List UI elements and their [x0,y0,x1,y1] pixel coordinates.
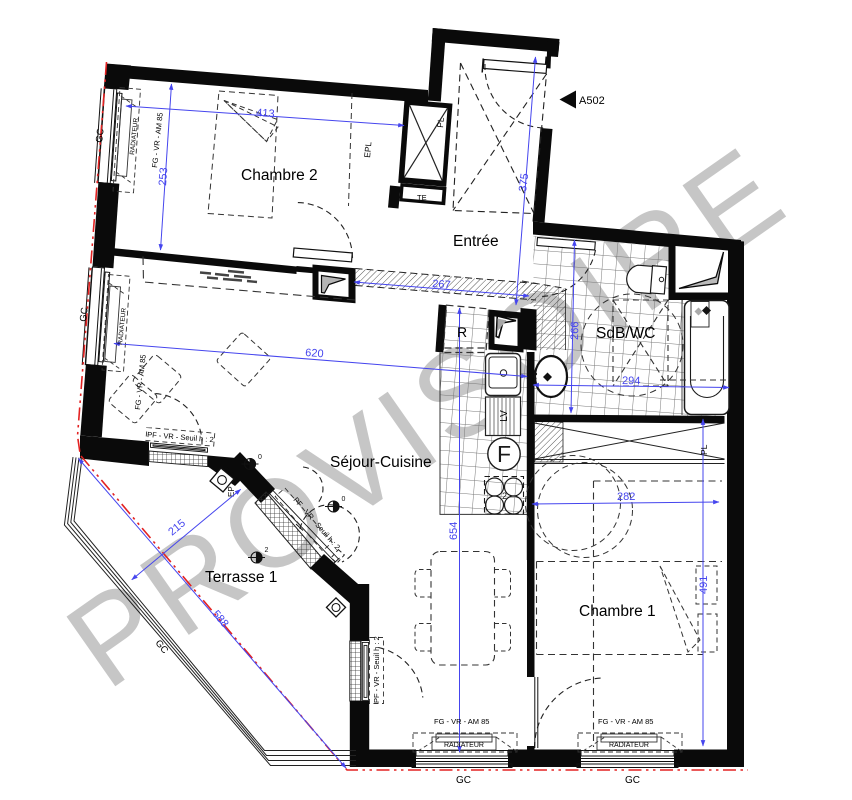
svg-text:PL: PL [699,444,709,455]
svg-text:491: 491 [698,576,710,594]
svg-text:R: R [457,324,467,340]
svg-text:654: 654 [448,522,460,540]
svg-text:GC: GC [456,775,471,786]
svg-text:267: 267 [432,278,451,291]
svg-text:Terrasse 1: Terrasse 1 [205,569,277,586]
svg-text:GC: GC [625,775,640,786]
svg-text:F: F [497,441,511,467]
svg-text:RADIATEUR: RADIATEUR [444,742,484,749]
svg-text:GC: GC [78,307,91,323]
svg-text:FG - VR - AM 85: FG - VR - AM 85 [434,717,489,726]
svg-text:LV: LV [499,410,510,422]
svg-text:PF - VR - Seuil h : 2: PF - VR - Seuil h : 2 [372,636,381,703]
svg-text:RADIATEUR: RADIATEUR [609,742,649,749]
svg-text:Séjour-Cuisine: Séjour-Cuisine [330,454,432,471]
svg-text:620: 620 [305,347,324,360]
svg-text:266: 266 [569,321,581,340]
svg-text:294: 294 [622,375,641,387]
svg-text:Entrée: Entrée [453,233,499,250]
svg-text:Chambre 1: Chambre 1 [579,603,656,620]
svg-text:253: 253 [157,167,170,186]
svg-text:A502: A502 [579,95,605,107]
svg-text:TE: TE [417,193,427,202]
svg-text:EPL: EPL [362,141,373,158]
svg-text:2: 2 [265,547,269,554]
svg-text:0: 0 [342,496,346,503]
svg-text:FG - VR - AM 85: FG - VR - AM 85 [598,717,653,726]
svg-text:Chambre 2: Chambre 2 [241,167,318,184]
svg-text:375: 375 [517,173,531,193]
svg-text:413: 413 [256,107,275,120]
svg-text:0: 0 [258,454,262,461]
svg-text:SdB/WC: SdB/WC [596,325,655,342]
svg-text:PL: PL [435,117,446,129]
svg-text:EP: EP [227,486,236,497]
svg-text:2: 2 [502,491,507,501]
svg-text:282: 282 [617,491,635,503]
svg-text:GC: GC [94,128,107,144]
